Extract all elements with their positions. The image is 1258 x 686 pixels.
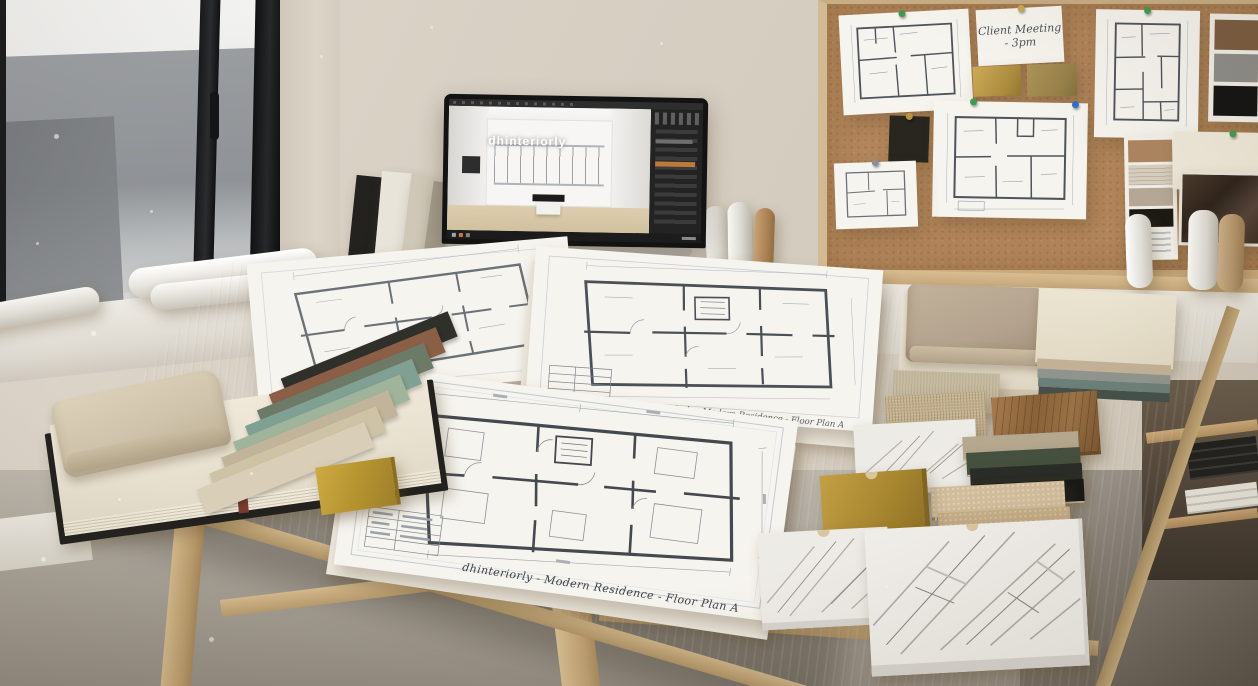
screen: dhinteriorly [447,99,703,243]
client-meeting-note: Client Meeting - 3pm [976,6,1065,66]
tool-panel-icons [655,112,699,125]
tool-panel-highlight-row [655,139,692,144]
color-chip-brown [1214,20,1258,51]
design-studio-photo: Client Meeting - 3pm [0,0,1258,686]
floor-plan-drawing [834,161,918,230]
standing-paper-roll [1187,210,1218,291]
pinned-floor-plan [1094,9,1200,139]
note-line-2: - 3pm [1004,35,1036,50]
status-icon [682,237,696,240]
palette-chip-tan [1128,140,1172,163]
standing-kraft-roll [1217,214,1246,293]
imac-display: dhinteriorly [442,94,709,249]
marble-tile-large [864,518,1089,676]
window-frame-left [0,0,6,335]
pinned-floor-plan [834,161,918,230]
push-pin [1229,130,1236,137]
status-icon [466,233,470,237]
book-cover-cream [1035,288,1177,369]
brass-sample [1027,64,1078,97]
push-pin [1144,7,1151,14]
status-icon [452,232,456,236]
render-viewport: dhinteriorly [447,106,651,234]
room-console [536,203,560,215]
software-watermark: dhinteriorly [448,133,606,150]
status-icon [459,232,463,236]
push-pin [1072,101,1079,108]
room-right-wall [609,109,651,209]
color-sample-card [1208,14,1258,123]
fabric-book-stacked [1033,288,1179,405]
room-tv [532,194,564,202]
tool-panel-active-row [655,161,695,167]
standing-paper-roll [1125,214,1154,289]
sample-hanging-notch [865,472,877,480]
floor-plan-drawing [838,9,973,116]
color-chip-gray [1214,54,1258,83]
dust-specks [0,0,3,3]
palette-chip-greige [1129,188,1173,207]
pinned-floor-plan [838,9,973,116]
push-pin [1017,5,1024,12]
floor-plan-drawing [1094,9,1200,139]
push-pin [906,113,913,120]
tool-panel-rows [654,129,698,228]
floor-plan-drawing [932,101,1088,220]
black-fabric-swatch [888,115,930,162]
pinned-floor-plan [932,101,1088,220]
brass-sample [972,65,1021,97]
room-side-screen [462,156,480,174]
window-handle [210,92,219,140]
room-window-band [494,144,604,187]
screen-main-row: dhinteriorly [447,106,703,234]
color-chip-black [1213,86,1258,117]
palette-chip-weave [1128,165,1172,186]
tool-panel [649,109,703,234]
marble-veins [864,519,1085,666]
